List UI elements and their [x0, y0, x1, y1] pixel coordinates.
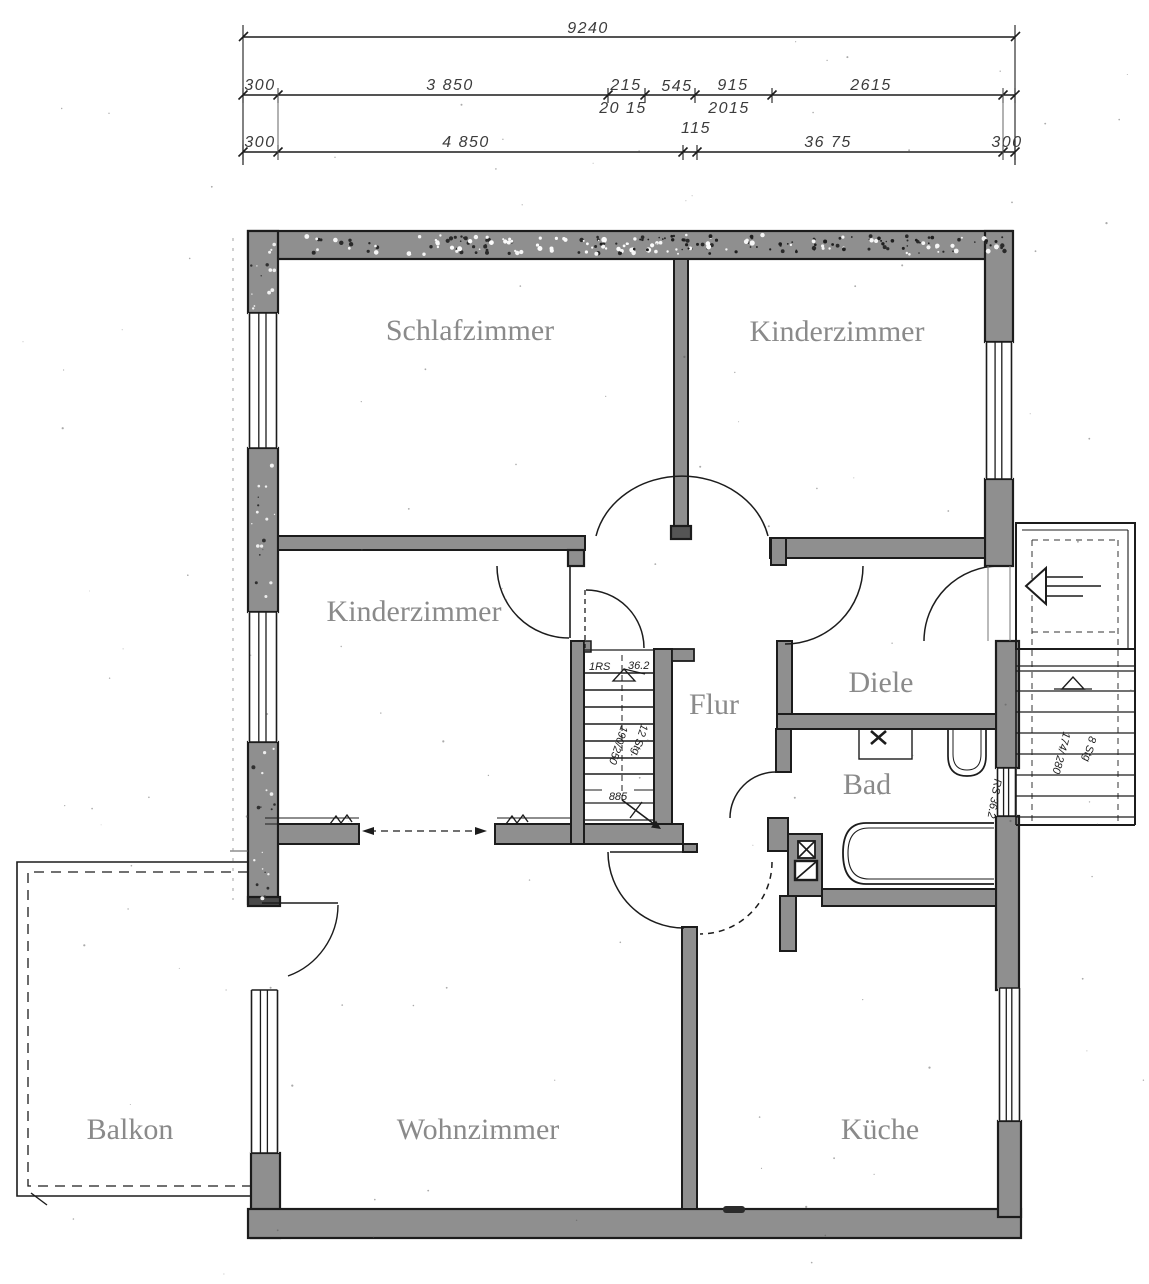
- svg-text:Balkon: Balkon: [87, 1113, 174, 1146]
- svg-text:2015: 2015: [707, 100, 750, 117]
- svg-text:Diele: Diele: [849, 666, 914, 699]
- svg-text:300: 300: [991, 134, 1022, 151]
- svg-text:3 850: 3 850: [426, 77, 474, 94]
- svg-text:Wohnzimmer: Wohnzimmer: [397, 1113, 560, 1146]
- svg-text:300: 300: [244, 77, 275, 94]
- svg-text:Bad: Bad: [843, 768, 891, 801]
- svg-text:Kinderzimmer: Kinderzimmer: [327, 595, 502, 628]
- svg-text:115: 115: [681, 120, 711, 137]
- svg-text:4 850: 4 850: [442, 134, 490, 151]
- svg-text:Küche: Küche: [841, 1113, 919, 1146]
- svg-text:20 15: 20 15: [598, 100, 647, 117]
- svg-text:36 75: 36 75: [804, 134, 852, 151]
- svg-text:Schlafzimmer: Schlafzimmer: [386, 314, 554, 347]
- svg-text:Flur: Flur: [689, 688, 739, 721]
- svg-text:545: 545: [661, 78, 692, 95]
- svg-text:1RS: 1RS: [589, 661, 611, 673]
- svg-text:915: 915: [717, 77, 748, 94]
- svg-text:9240: 9240: [567, 20, 609, 37]
- svg-text:300: 300: [244, 134, 275, 151]
- svg-text:885: 885: [609, 791, 628, 803]
- svg-text:2615: 2615: [849, 77, 892, 94]
- svg-text:215: 215: [609, 77, 641, 94]
- svg-text:Kinderzimmer: Kinderzimmer: [750, 315, 925, 348]
